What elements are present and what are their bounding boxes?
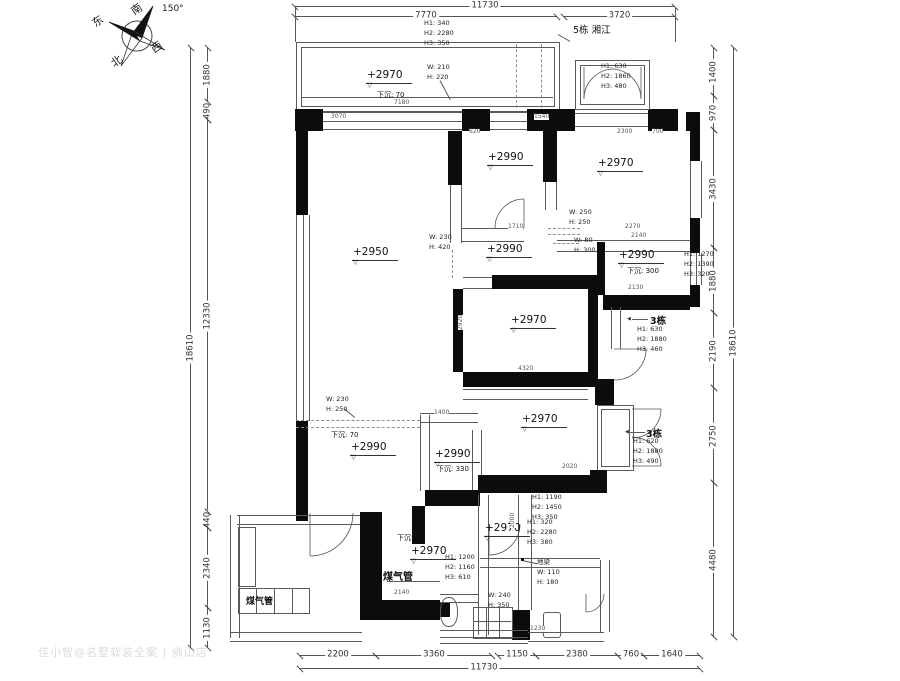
annotation-bottom-window: H1: 1200H2: 1160H3: 610: [445, 553, 475, 582]
dim-label: 12330: [203, 300, 212, 331]
compass-south-label: 南: [127, 0, 145, 19]
dim-label: 1150: [504, 651, 530, 660]
dim-chain-right-seg: 2190: [713, 313, 714, 388]
dim-chain-bottom-seg: 2200: [300, 655, 376, 656]
minor-dim: 620: [469, 129, 480, 135]
fixture-line: [486, 607, 487, 637]
dim-tick: [532, 652, 539, 659]
level-marker-icon: ▽: [367, 82, 372, 89]
dim-tick: [553, 13, 560, 20]
wall-segment: [448, 131, 462, 185]
compass-angle-label: 150°: [162, 4, 184, 14]
wall-segment: [425, 490, 480, 506]
level-label-bath2: +2970▽: [484, 523, 530, 537]
wall-segment: [453, 289, 463, 372]
wall-segment: [595, 379, 614, 405]
level-label-bed3: +2970▽: [510, 315, 556, 329]
partition: [518, 495, 532, 610]
wall-segment: [690, 285, 700, 307]
sunken-label: 下沉: 70: [377, 92, 405, 99]
minor-dim: 700: [652, 129, 663, 135]
arrow-left-icon: ◀: [625, 430, 629, 435]
dim-label: 3430: [709, 176, 718, 202]
dim-tick: [204, 44, 211, 51]
partition: [450, 185, 462, 243]
dim-label: 2200: [325, 651, 351, 660]
dim-chain-right-seg: 2750: [713, 388, 714, 483]
dim-label: 970: [709, 103, 718, 123]
building-callout-3b: 3栋: [646, 426, 662, 440]
beam-dashed-line: [548, 228, 580, 229]
partition: [611, 307, 621, 349]
partition: [230, 632, 362, 642]
minor-dim: 2920: [458, 315, 464, 330]
dim-tick: [696, 652, 703, 659]
minor-dim: 2270: [625, 224, 640, 230]
dim-label: 11730: [469, 2, 500, 11]
dim-label: 2340: [203, 555, 212, 581]
building-callout-5: 5栋 湘江: [573, 22, 611, 36]
level-marker-icon: ▽: [511, 327, 516, 334]
dim-chain-right-seg: 4480: [713, 483, 714, 637]
dim-label: 2380: [564, 651, 590, 660]
level-marker-icon: ▽: [485, 535, 490, 542]
leader-line: [558, 34, 571, 42]
level-marker-icon: ▽: [619, 262, 624, 269]
dim-tick: [730, 44, 737, 51]
fixture-line: [473, 621, 511, 622]
minor-dim: 2000: [510, 513, 516, 528]
minor-dim: 7180: [394, 100, 409, 106]
wall-segment: [686, 112, 700, 131]
bay-threshold: [575, 113, 648, 127]
partition: [600, 560, 610, 632]
dim-tick: [187, 44, 194, 51]
dim-chain-bottom-seg: 760: [618, 655, 644, 656]
dim-chain-left-seg: 1130: [207, 608, 208, 648]
window: [490, 112, 527, 130]
partition: [545, 182, 557, 210]
wall-segment: [295, 109, 323, 131]
leader-dot: [521, 558, 524, 561]
dim-chain-top-seg: 3720: [564, 16, 675, 17]
dim-chain-left-seg: 490: [207, 102, 208, 120]
dim-tick: [640, 652, 647, 659]
minor-dim: 1710: [508, 224, 523, 230]
partition: [690, 161, 702, 218]
annotation-beam-b: W: 240H: 350: [488, 591, 511, 611]
dim-chain-top-overall: 11730: [295, 6, 675, 7]
dim-chain-bottom-overall: 11730: [300, 668, 700, 669]
dim-label: 4480: [709, 547, 718, 573]
dim-chain-left-seg: 12330: [207, 120, 208, 512]
wall-segment: [296, 421, 308, 521]
annotation-br2: H1: 320H2: 2280H3: 380: [527, 518, 557, 547]
floorplan-canvas: 南 东 西 北 150° 11730 7770 3720 2200 3360 1…: [0, 0, 900, 681]
minor-dim: 2020: [562, 464, 577, 470]
sunken-label: 下沉: 70: [331, 432, 359, 439]
annotation-bay-tr: H1: 630H2: 1860H3: 480: [601, 62, 631, 91]
dim-chain-bottom-seg: 1640: [644, 655, 700, 656]
leader-line: [630, 432, 645, 433]
wall-segment: [690, 131, 700, 161]
partition: [462, 228, 524, 242]
washbasin-grid: [473, 607, 513, 639]
sunken-label: 下沉: 300: [627, 268, 659, 275]
partition: [463, 277, 492, 289]
wall-segment: [588, 289, 598, 372]
minor-dim: 1400: [434, 410, 449, 416]
minor-dim: 2140: [394, 590, 409, 596]
wall-segment: [360, 600, 440, 620]
dim-chain-left-seg: 2340: [207, 528, 208, 608]
beam-dashed-line: [452, 250, 453, 278]
leader-line: [387, 581, 440, 582]
level-marker-icon: ▽: [487, 256, 492, 263]
partition: [237, 515, 360, 525]
annotation-b3a: H1: 630H2: 1880H3: 460: [637, 325, 667, 354]
dim-tick: [710, 384, 717, 391]
toilet-fixture: [440, 597, 458, 627]
dim-label: 2750: [709, 423, 718, 449]
wall-segment: [463, 372, 598, 387]
dim-tick: [710, 126, 717, 133]
partition: [420, 415, 430, 491]
kitchen-cabinet: [238, 527, 256, 587]
partition: [528, 632, 604, 642]
wall-segment: [360, 512, 382, 600]
annotation-beam-ll: W: 230H: 250: [326, 395, 349, 415]
annotation-beam-c1: W: 250H: 250: [569, 208, 592, 228]
annotation-b3b: H1: 620H2: 1880H3: 490: [633, 437, 663, 466]
dim-chain-right-seg: 1400: [713, 48, 714, 96]
beam-dashed-line: [516, 44, 517, 108]
level-label-living: +2950▽: [352, 247, 398, 261]
closet-lines: [463, 389, 588, 400]
level-marker-icon: ▽: [598, 170, 603, 177]
level-marker-icon: ▽: [353, 259, 358, 266]
extension-line: [295, 8, 296, 42]
gas-pipe-label: 煤气管: [246, 594, 273, 607]
dim-chain-left-overall: 18610: [190, 48, 191, 648]
fixture: [543, 612, 561, 638]
dim-label: 18610: [186, 332, 195, 363]
compass-east-label: 东: [88, 11, 106, 30]
level-marker-icon: ▽: [522, 426, 527, 433]
compass-north-label: 北: [107, 51, 125, 70]
dim-chain-left-seg: 1880: [207, 48, 208, 102]
dim-label: 1400: [709, 59, 718, 85]
minor-dim: 2300: [617, 129, 632, 135]
dim-label: 11730: [468, 664, 499, 673]
minor-dim: 3070: [331, 114, 346, 120]
wall-segment: [690, 218, 700, 253]
dim-chain-bottom-seg: 1150: [498, 655, 536, 656]
annotation-beam-c2: W: 80H: 300: [574, 236, 596, 256]
window: [296, 215, 310, 421]
level-label-bed2: +2970▽: [597, 158, 643, 172]
level-label-bath1: +2990▽: [618, 250, 664, 264]
watermark-text: 佳小智@名墅软装全案 | 佛山店: [38, 644, 208, 660]
dim-label: 1880: [203, 62, 212, 88]
beam-dashed-line: [541, 44, 542, 108]
dim-tick: [730, 633, 737, 640]
annotation-beam-top: W: 210H: 220: [427, 63, 450, 83]
dim-tick: [710, 92, 717, 99]
minor-dim: 2130: [628, 285, 643, 291]
level-label-lower-left: +2990▽: [350, 442, 396, 456]
dim-label: 3720: [607, 12, 633, 21]
wall-segment: [478, 475, 606, 493]
minor-dim: 2140: [631, 233, 646, 239]
wall-segment: [492, 275, 598, 289]
leader-line: [632, 319, 648, 320]
sunken-label: 下沉: 330: [437, 466, 469, 473]
level-label-bed1: +2990▽: [487, 152, 533, 166]
extension-line: [675, 8, 676, 42]
arrow-left-icon: ◀: [627, 317, 631, 322]
dim-chain-right-seg: 3430: [713, 130, 714, 248]
wall-segment: [597, 242, 605, 295]
level-label-corridor: +2990▽: [486, 244, 532, 258]
dim-label: 1640: [659, 651, 685, 660]
dim-tick: [710, 633, 717, 640]
bay-window-inner: [601, 409, 630, 467]
dim-label: 1130: [203, 615, 212, 641]
dim-label: 2190: [709, 338, 718, 364]
annotation-right-mid: H1: 1270H2: 1390H3: 320: [684, 250, 714, 279]
sunken-boundary-dashed: [296, 427, 420, 428]
level-marker-icon: ▽: [488, 164, 493, 171]
dim-tick: [204, 604, 211, 611]
fixture-line: [499, 607, 500, 637]
beam-dashed-line: [548, 234, 580, 235]
dim-label: 3360: [421, 651, 447, 660]
level-marker-icon: ▽: [351, 454, 356, 461]
annotation-top-window: H1: 340H2: 2280H3: 350: [424, 19, 454, 48]
dim-chain-bottom-seg: 3360: [376, 655, 492, 656]
sunken-label: 下沉: 60: [397, 535, 425, 542]
level-marker-icon: ▽: [411, 558, 416, 565]
wall-segment: [296, 131, 308, 215]
dim-chain-top-seg: 7770: [295, 16, 557, 17]
minor-dim: 4320: [518, 366, 533, 372]
dim-chain-right-overall: 18610: [733, 48, 734, 637]
dim-tick: [710, 479, 717, 486]
dim-tick: [710, 309, 717, 316]
annotation-beam-left: W: 230H: 420: [429, 233, 452, 253]
sunken-boundary-dashed: [296, 420, 420, 421]
dim-tick: [296, 652, 303, 659]
level-label-lower-mid: +2990▽: [434, 449, 480, 463]
dim-tick: [710, 44, 717, 51]
level-label-bed4: +2970▽: [521, 414, 567, 428]
dim-chain-bottom-seg: 2380: [536, 655, 618, 656]
dim-label: 18610: [729, 327, 738, 358]
compass-west-label: 西: [147, 37, 165, 56]
dim-chain-right-seg: 970: [713, 96, 714, 130]
annotation-ground-beam: 地梁W: 110H: 180: [537, 558, 560, 587]
dim-tick: [560, 13, 567, 20]
building-callout-3a: 3栋: [650, 313, 666, 327]
minor-dim: 1540: [534, 114, 549, 120]
dim-tick: [372, 652, 379, 659]
dim-tick: [696, 665, 703, 672]
dim-tick: [296, 665, 303, 672]
dim-label: 760: [621, 651, 641, 660]
wall-segment: [543, 131, 557, 182]
minor-dim: 1230: [530, 626, 545, 632]
level-label-balcony: +2970▽: [366, 70, 412, 84]
